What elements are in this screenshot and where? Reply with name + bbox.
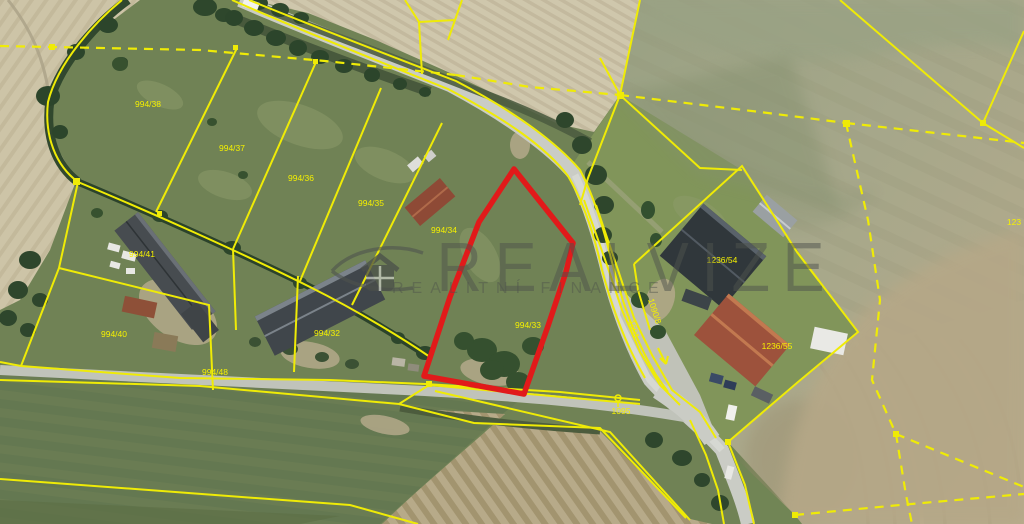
svg-text:994/38: 994/38 <box>135 99 161 109</box>
svg-text:123: 123 <box>1007 217 1021 227</box>
svg-text:994/48: 994/48 <box>202 367 228 377</box>
svg-text:994/41: 994/41 <box>129 249 155 259</box>
svg-text:1095: 1095 <box>612 406 631 416</box>
svg-text:REALITNÍ FINANCE: REALITNÍ FINANCE <box>392 278 667 297</box>
svg-text:994/36: 994/36 <box>288 173 314 183</box>
svg-text:994/33: 994/33 <box>515 320 541 330</box>
svg-text:994/40: 994/40 <box>101 329 127 339</box>
svg-text:994/32: 994/32 <box>314 328 340 338</box>
svg-text:994/37: 994/37 <box>219 143 245 153</box>
svg-text:1236/55: 1236/55 <box>762 341 793 351</box>
svg-text:994/35: 994/35 <box>358 198 384 208</box>
